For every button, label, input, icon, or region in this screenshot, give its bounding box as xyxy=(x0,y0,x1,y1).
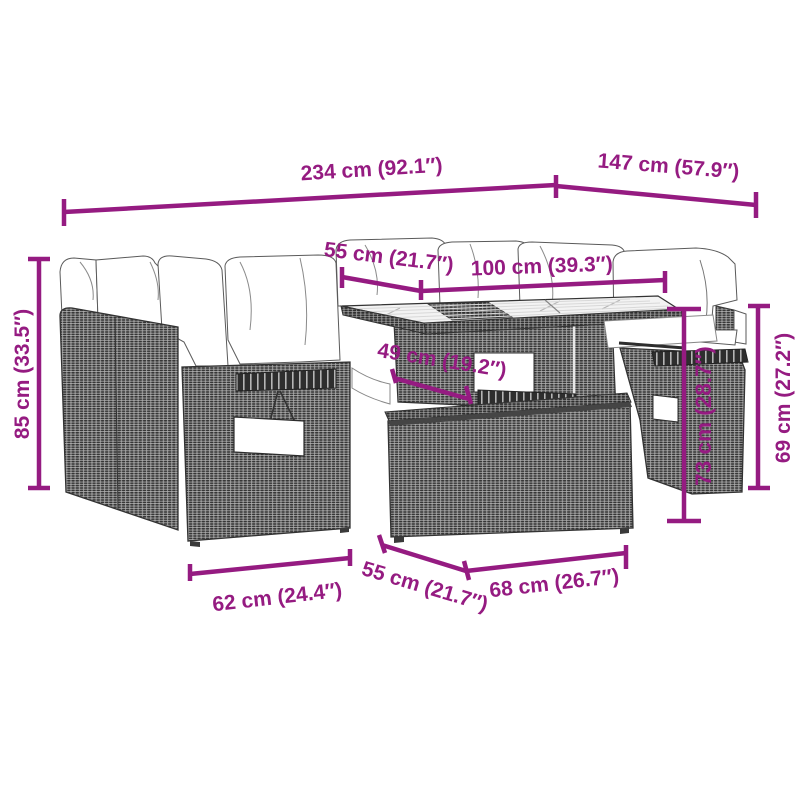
svg-text:85 cm (33.5″): 85 cm (33.5″) xyxy=(11,309,34,439)
svg-text:73 cm (28.7″): 73 cm (28.7″) xyxy=(691,346,716,486)
svg-text:69 cm (27.2″): 69 cm (27.2″) xyxy=(772,333,795,463)
